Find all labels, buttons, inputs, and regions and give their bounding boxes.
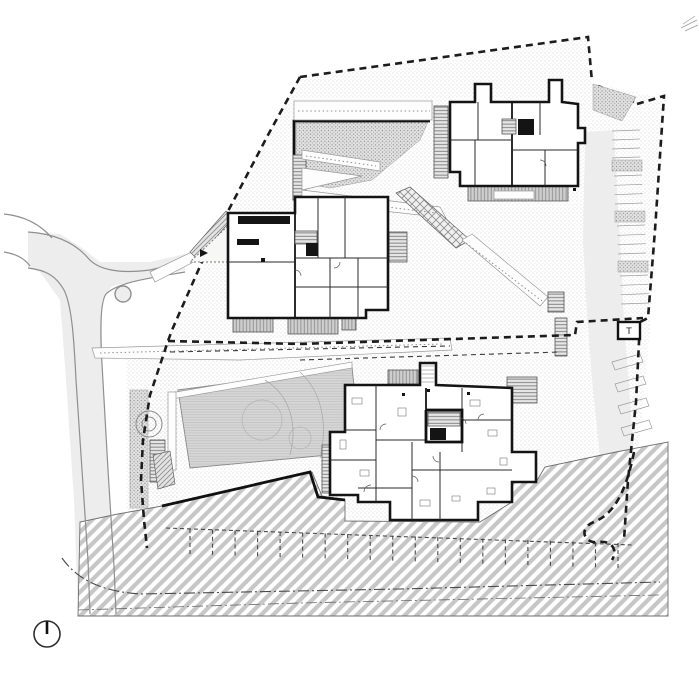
parking-island bbox=[612, 160, 642, 171]
parking-island bbox=[615, 211, 645, 222]
terrace bbox=[388, 370, 418, 384]
parking-island bbox=[618, 261, 648, 272]
roundabout-island bbox=[115, 286, 131, 302]
stair-core bbox=[295, 231, 317, 244]
fixture bbox=[573, 188, 576, 191]
ramp-strip bbox=[434, 106, 448, 178]
elevator-core bbox=[306, 243, 318, 256]
elevator-core bbox=[430, 428, 446, 440]
fixture bbox=[238, 216, 290, 224]
elevator-core bbox=[518, 119, 534, 135]
north-arrow-icon bbox=[34, 621, 60, 647]
fixture bbox=[427, 389, 430, 392]
transformer-box: T bbox=[625, 327, 632, 337]
stair-core bbox=[428, 412, 460, 426]
site-plan-canvas: T bbox=[0, 0, 699, 700]
stair-core bbox=[502, 119, 516, 134]
fixture bbox=[402, 393, 405, 396]
planter bbox=[494, 191, 534, 199]
stair-block bbox=[389, 232, 407, 262]
curb bbox=[4, 252, 30, 266]
fixture bbox=[261, 258, 265, 262]
stair-strip bbox=[548, 292, 564, 312]
corner-mark bbox=[685, 25, 698, 31]
plan-layers bbox=[4, 16, 698, 616]
playground-band bbox=[130, 390, 148, 508]
transformer-label: T bbox=[625, 327, 632, 337]
stair-strip bbox=[555, 318, 567, 356]
corner-mark bbox=[683, 16, 695, 24]
fixture bbox=[237, 239, 259, 245]
site-plan-drawing: T bbox=[0, 0, 699, 700]
fixture bbox=[467, 392, 470, 395]
